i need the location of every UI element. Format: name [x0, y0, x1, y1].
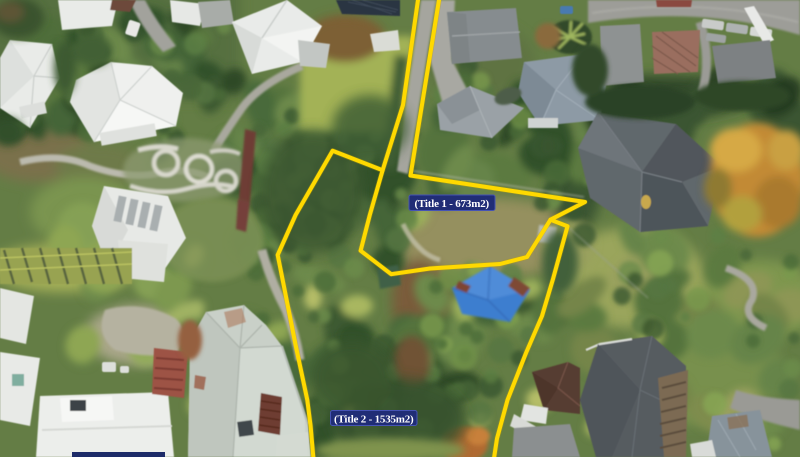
svg-text:(Title 2 - 1535m2): (Title 2 - 1535m2): [334, 413, 414, 425]
svg-text:(Title 1 - 673m2): (Title 1 - 673m2): [415, 198, 490, 210]
